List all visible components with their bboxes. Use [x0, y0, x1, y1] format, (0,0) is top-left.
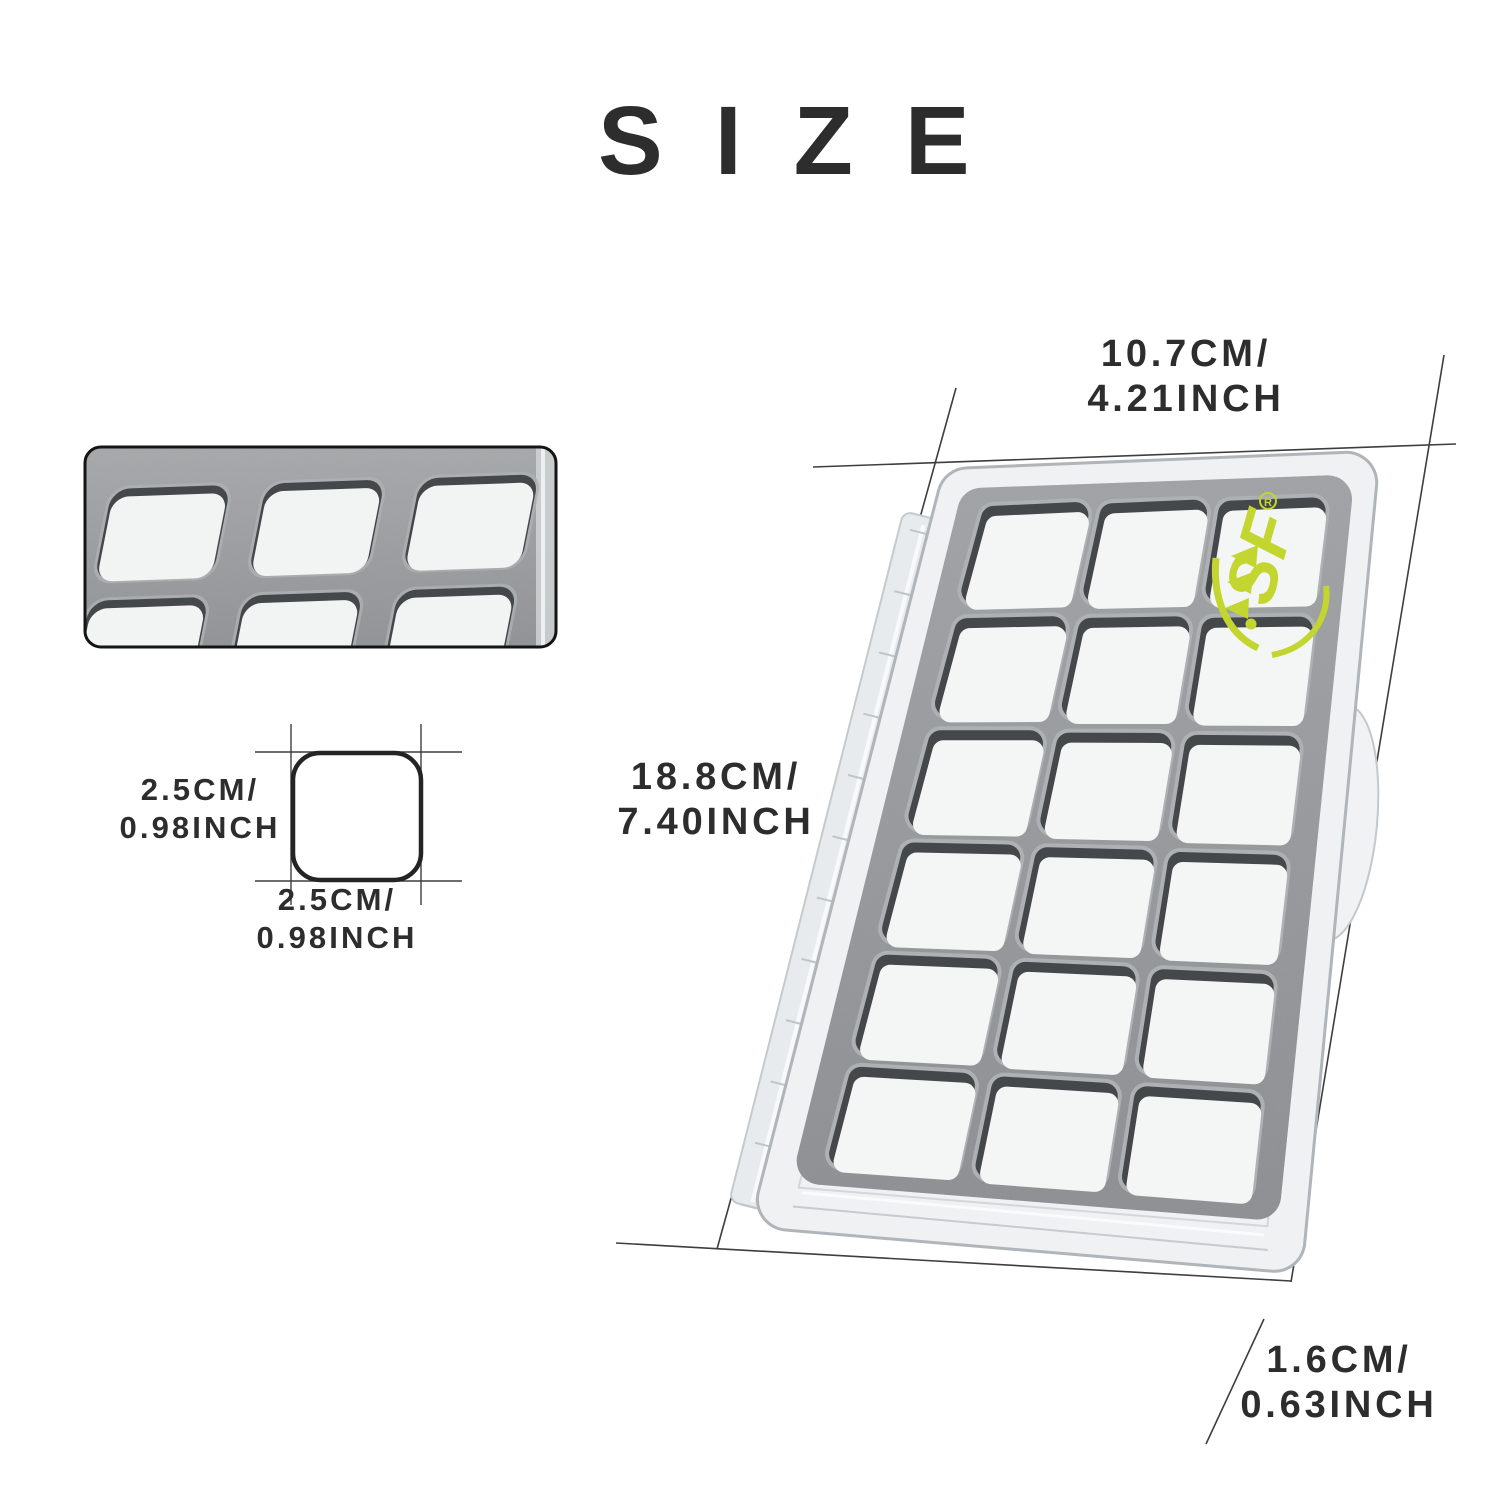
cell-height-inch-text: 0.98INCH: [75, 809, 325, 847]
compartment-cell: [1056, 754, 1161, 830]
compartment-cell: [991, 1098, 1107, 1181]
compartment-cell: [1188, 756, 1289, 835]
compartment-cell: [924, 751, 1033, 825]
inset-cell: [250, 488, 381, 577]
compartment-cell: [1034, 868, 1143, 947]
compartment-cell: [1154, 990, 1263, 1073]
inset-cell: [405, 482, 536, 571]
inset-cell: [383, 594, 514, 683]
thickness-cm-text: 1.6CM/: [1163, 1338, 1500, 1383]
inset-cell: [74, 605, 205, 694]
dimension-label-thickness: 1.6CM/ 0.63INCH: [1163, 1338, 1500, 1428]
compartment-cell: [871, 976, 987, 1055]
registered-mark-letter: R: [1264, 497, 1272, 509]
length-cm-text: 18.8CM/: [540, 755, 892, 800]
page-title: SIZE: [598, 92, 1022, 189]
dimension-label-cell-width: 2.5CM/ 0.98INCH: [162, 881, 512, 957]
dimension-label-cell-height: 2.5CM/ 0.98INCH: [75, 771, 325, 847]
cell-height-cm-text: 2.5CM/: [75, 771, 325, 809]
compartment-cell: [1013, 983, 1125, 1064]
compartment-cell: [898, 864, 1010, 941]
logo-dot: [1246, 619, 1257, 630]
cell-width-inch-text: 0.98INCH: [162, 919, 512, 957]
inset-cell: [96, 493, 227, 582]
dimension-label-length: 18.8CM/ 7.40INCH: [540, 755, 892, 845]
compartment-cell: [845, 1088, 965, 1169]
width-inch-text: 4.21INCH: [1010, 377, 1362, 422]
compartment-cell: [1138, 1107, 1251, 1192]
length-inch-text: 7.40INCH: [540, 800, 892, 845]
cell-width-cm-text: 2.5CM/: [162, 881, 512, 919]
width-cm-text: 10.7CM/: [1010, 332, 1362, 377]
compartment-cell: [951, 637, 1056, 711]
fly-box: [740, 483, 1388, 1250]
compartment-cell: [977, 523, 1078, 599]
compartment-cell: [1171, 873, 1276, 954]
thickness-inch-text: 0.63INCH: [1163, 1383, 1500, 1428]
inset-foam-photo: [68, 447, 556, 696]
size-infographic: SFR SIZE 10.7CM/ 4.21INCH 18.8CM/ 7.40IN…: [0, 0, 1500, 1500]
inset-cell: [229, 600, 360, 689]
dimension-label-width: 10.7CM/ 4.21INCH: [1010, 332, 1362, 422]
scene-graphic: SFR: [0, 0, 1500, 1500]
compartment-cell: [1077, 637, 1178, 713]
compartment-cell: [1099, 521, 1197, 598]
